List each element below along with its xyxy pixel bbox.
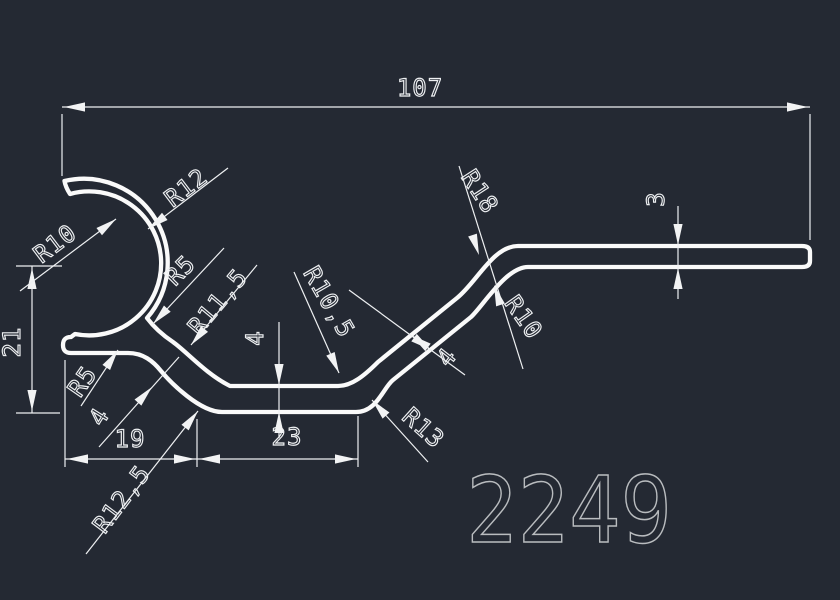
cad-viewport: 107 21 19 23 4 3 [0, 0, 840, 600]
cad-drawing-canvas: 107 21 19 23 4 3 [0, 0, 840, 600]
dim-left-height-label: 21 [0, 327, 26, 358]
dim-base-left-label: 19 [115, 425, 146, 453]
dim-overall-width-label: 107 [397, 74, 443, 102]
part-number: 2249 [466, 457, 672, 564]
dim-arm-thickness-label: 3 [642, 191, 670, 206]
dim-base-thickness-label: 4 [241, 330, 269, 345]
